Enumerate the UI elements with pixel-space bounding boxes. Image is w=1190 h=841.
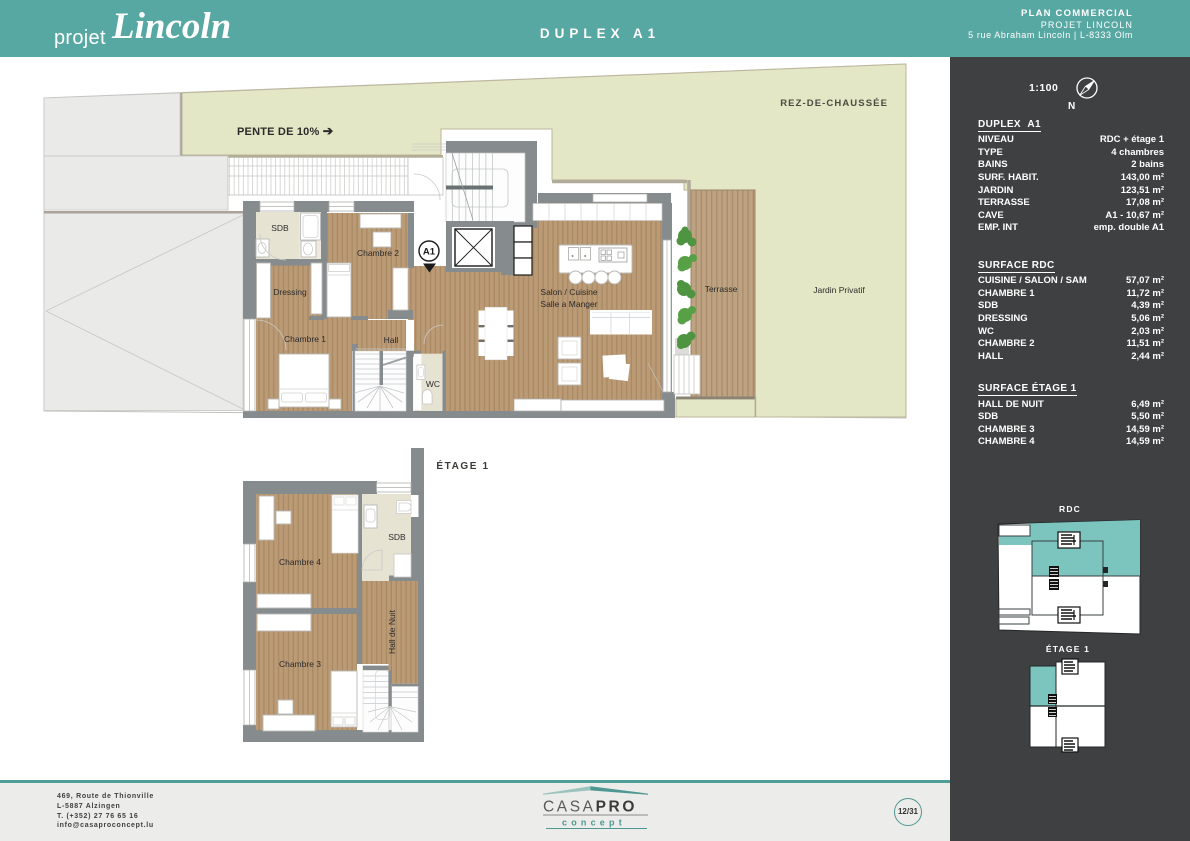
svg-text:RDC: RDC: [1059, 504, 1081, 514]
svg-text:Dressing: Dressing: [273, 287, 307, 297]
svg-text:Chambre 2: Chambre 2: [357, 248, 399, 258]
svg-text:Chambre 4: Chambre 4: [279, 557, 321, 567]
svg-text:Hall: Hall: [384, 335, 399, 345]
svg-text:Salle a Manger: Salle a Manger: [540, 299, 597, 309]
svg-text:Terrasse: Terrasse: [705, 284, 738, 294]
svg-text:CASAPRO: CASAPRO: [543, 799, 637, 816]
svg-text:Salon / Cuisine: Salon / Cuisine: [540, 287, 597, 297]
svg-text:ÉTAGE 1: ÉTAGE 1: [1046, 644, 1090, 654]
svg-text:REZ-DE-CHAUSSÉE: REZ-DE-CHAUSSÉE: [780, 98, 888, 109]
svg-text:PENTE DE 10% ➔: PENTE DE 10% ➔: [237, 124, 334, 138]
svg-text:Chambre 3: Chambre 3: [279, 659, 321, 669]
svg-text:SDB: SDB: [271, 223, 289, 233]
svg-text:Hall de Nuit: Hall de Nuit: [387, 609, 397, 654]
svg-text:N: N: [1068, 101, 1075, 112]
svg-text:WC: WC: [426, 379, 440, 389]
svg-text:Jardin Privatif: Jardin Privatif: [813, 285, 865, 295]
svg-text:Chambre 1: Chambre 1: [284, 334, 326, 344]
svg-text:concept: concept: [562, 818, 626, 828]
svg-text:SDB: SDB: [388, 532, 406, 542]
svg-text:A1: A1: [423, 247, 436, 258]
svg-text:ÉTAGE 1: ÉTAGE 1: [436, 459, 489, 472]
